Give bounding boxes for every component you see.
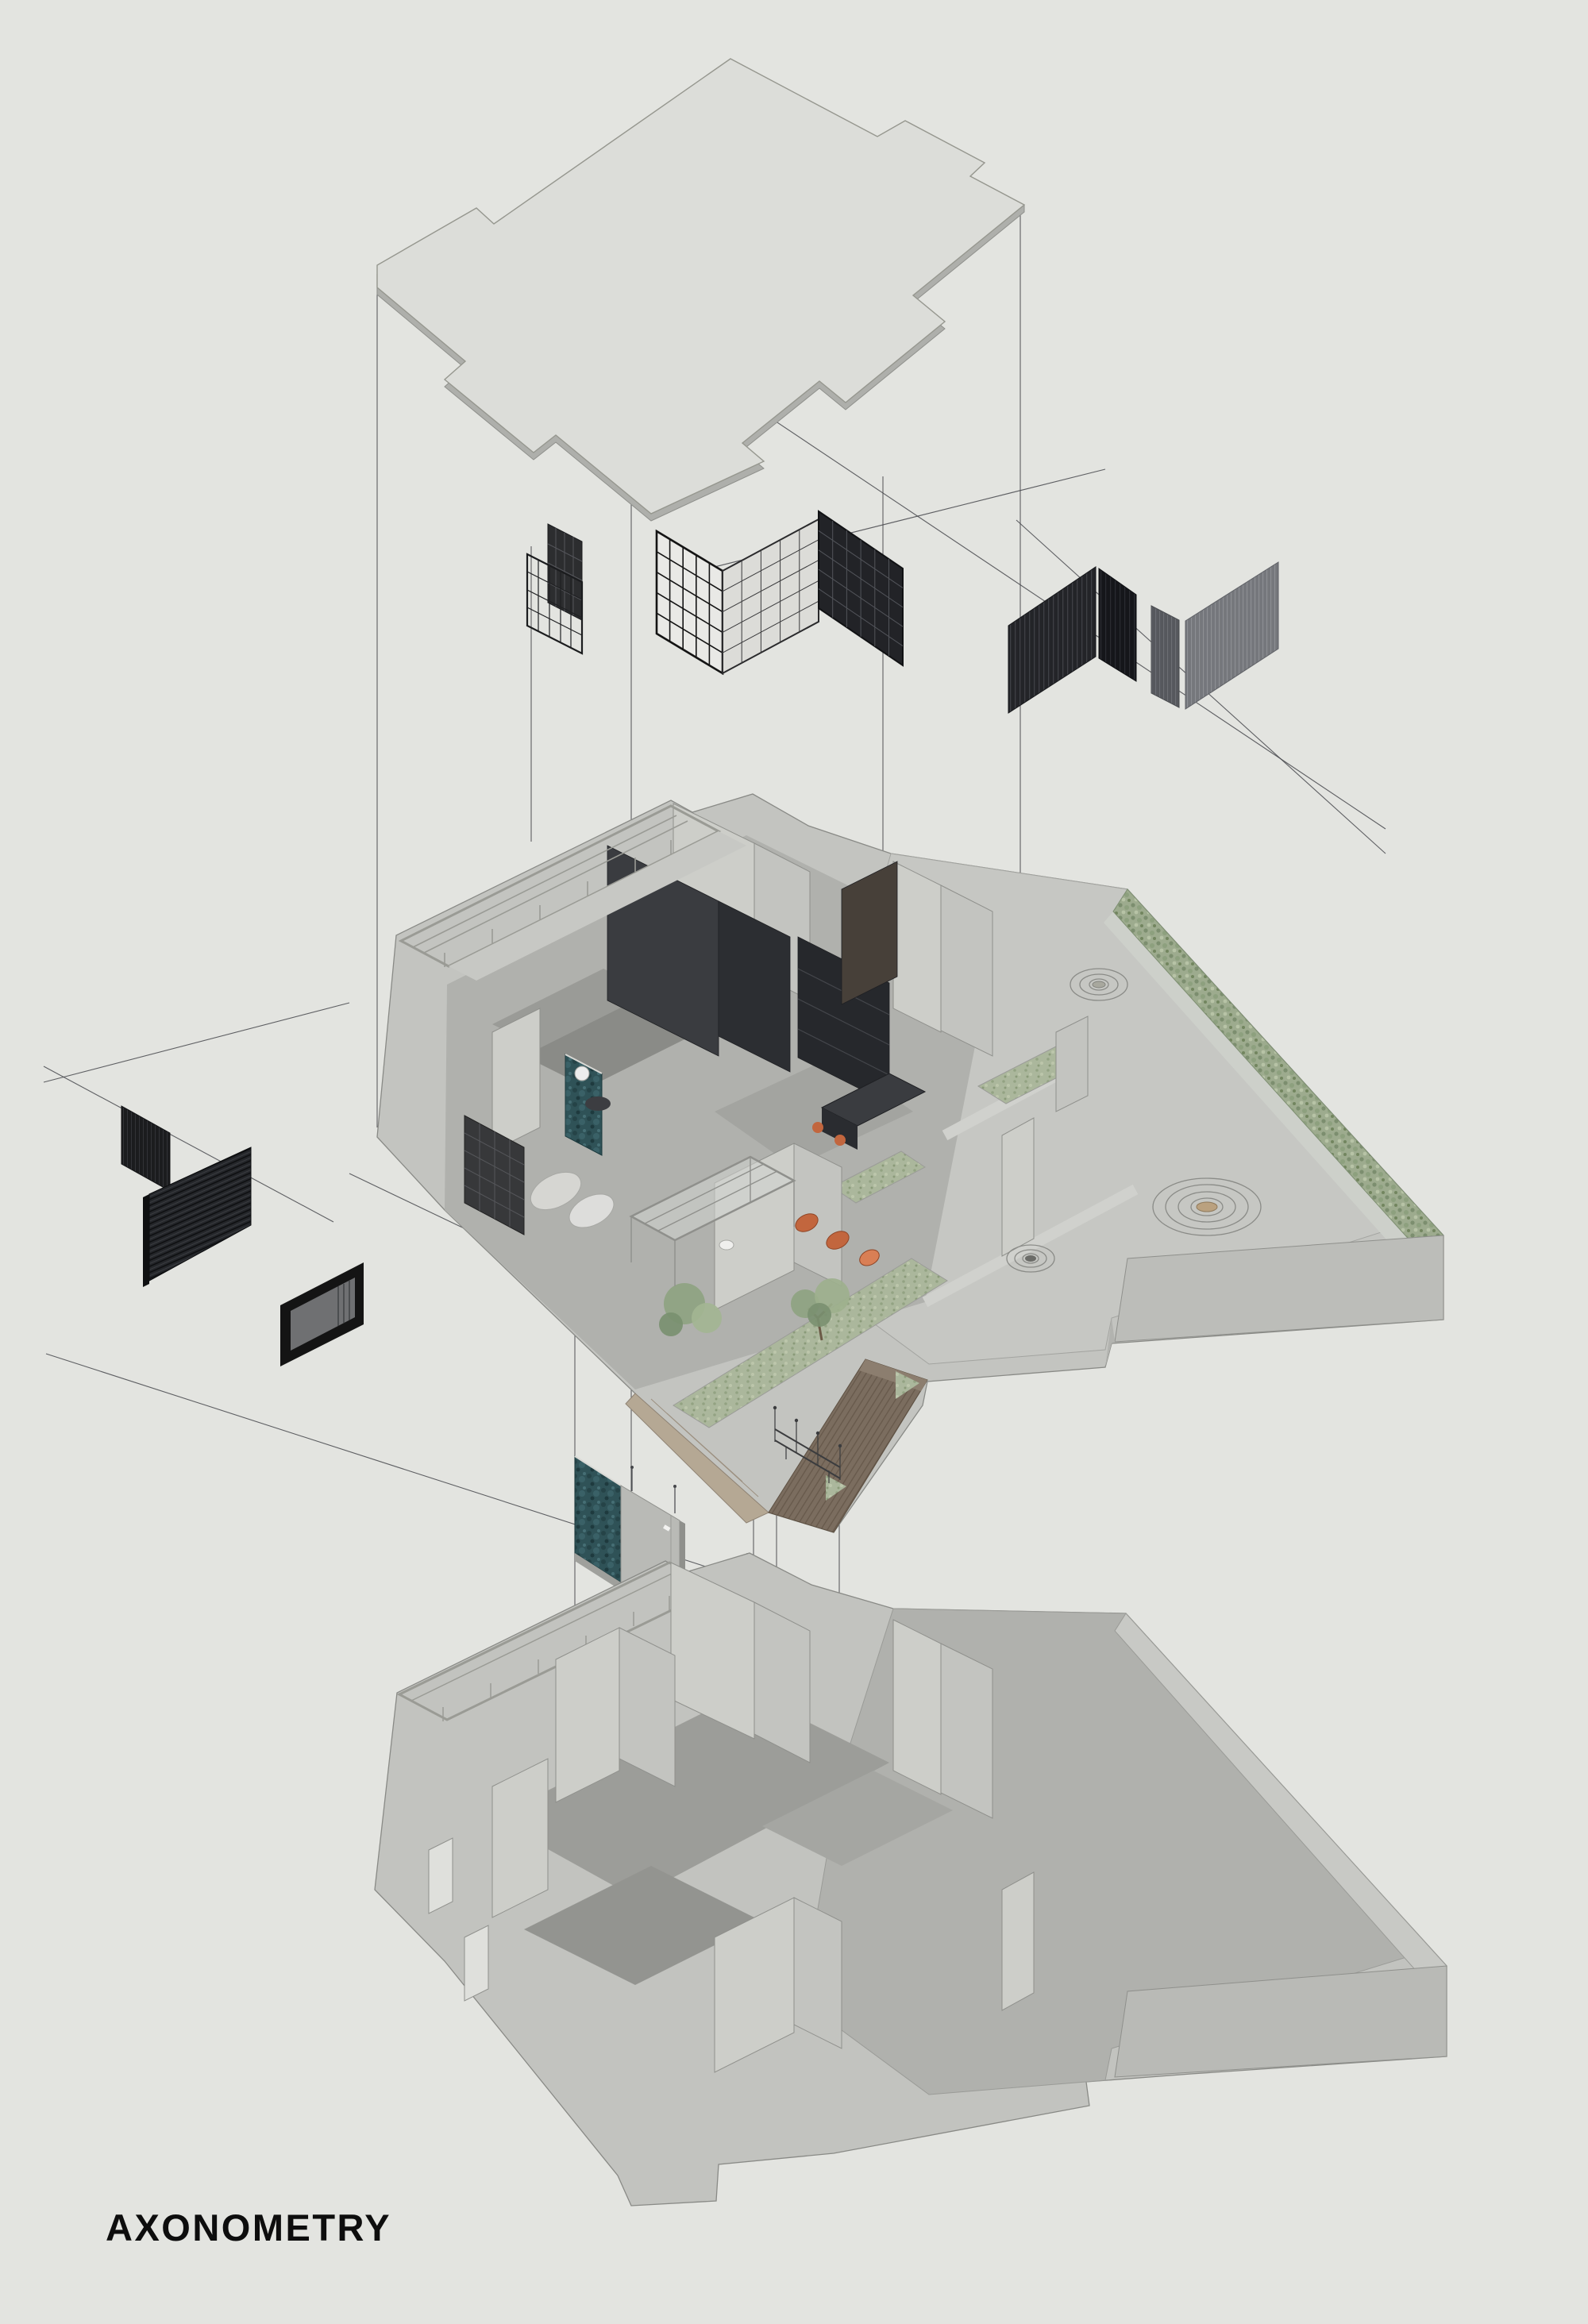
freestanding-wall	[1002, 1118, 1034, 1256]
teal-marble-panel	[575, 1456, 621, 1590]
dark-slatted-screen	[1008, 567, 1136, 713]
structural-wall	[754, 1602, 810, 1763]
coffee-table	[585, 1096, 611, 1111]
wall	[492, 1008, 540, 1151]
guide-line	[44, 1003, 349, 1082]
structural-partition	[1002, 1872, 1034, 2010]
structural-wall	[619, 1628, 675, 1786]
wall	[893, 861, 941, 1032]
tv-panel	[280, 1262, 364, 1366]
gray-slatted-screen	[1151, 562, 1278, 709]
structural-wall	[492, 1759, 548, 1917]
wall	[941, 885, 992, 1056]
wall	[794, 1143, 842, 1286]
structural-floor-layer	[375, 1553, 1447, 2206]
slat-panel	[121, 1106, 170, 1191]
structural-wall	[794, 1898, 842, 2048]
grid-enclosure-screen	[527, 524, 582, 653]
furnished-floor-layer	[377, 794, 1443, 1532]
folding-grid-screen	[657, 511, 903, 673]
page-title: AXONOMETRY	[106, 2206, 391, 2249]
lounge-chair	[575, 1066, 589, 1081]
wall	[1056, 1016, 1088, 1112]
screen-partition-layer	[527, 511, 1278, 713]
roof-slab-layer	[377, 59, 1024, 521]
left-screen-elements	[121, 1106, 364, 1366]
axonometry-sheet: AXONOMETRY	[0, 0, 1588, 2324]
axonometry-drawing: AXONOMETRY	[0, 0, 1588, 2324]
structural-wall	[893, 1620, 941, 1794]
structural-wall	[941, 1644, 992, 1818]
